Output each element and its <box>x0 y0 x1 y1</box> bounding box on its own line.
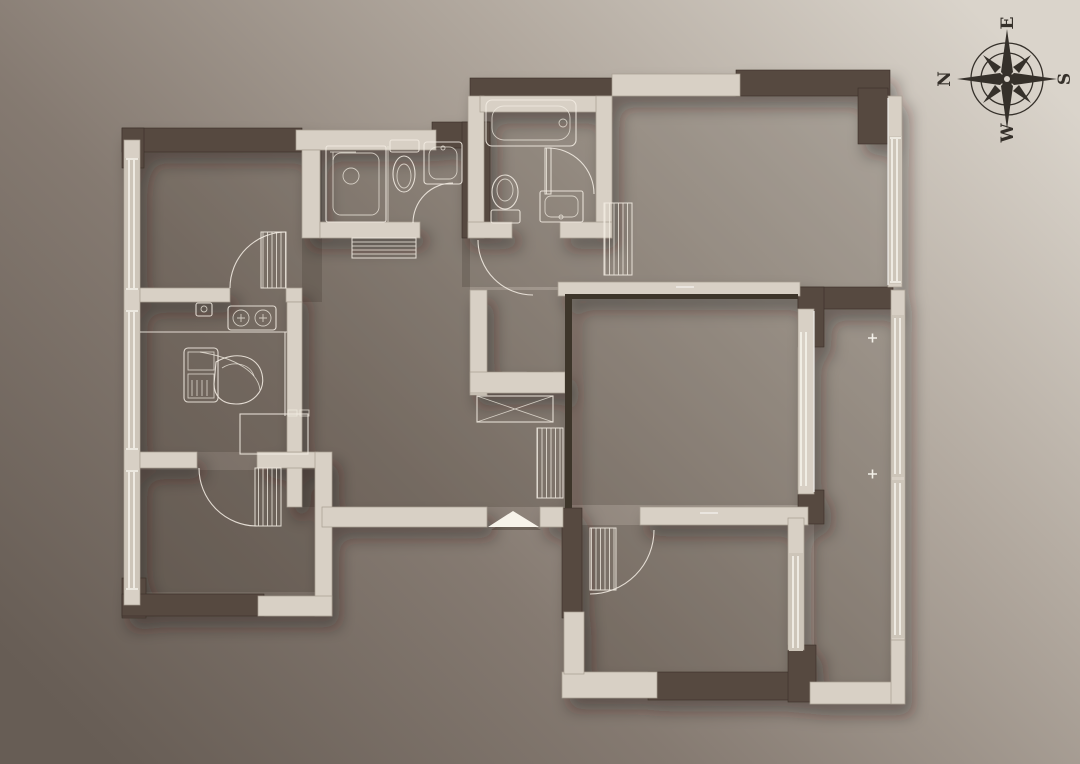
wall-light <box>564 612 584 674</box>
compass-label-south: S <box>1055 73 1075 85</box>
wall-light <box>140 288 230 302</box>
floor-kitchen-study <box>140 302 287 452</box>
door-leaf-top-left-bedroom <box>261 232 286 288</box>
wall-edge <box>565 294 798 299</box>
wall-light <box>286 288 302 302</box>
floor-living-room <box>612 96 888 287</box>
wall-light <box>891 640 905 704</box>
window-kitchen <box>125 310 139 450</box>
compass-label-east: E <box>998 16 1018 29</box>
wall-light <box>470 372 565 393</box>
compass-label-west: W <box>998 123 1018 144</box>
wall-light <box>322 507 487 527</box>
wall-dark <box>562 508 582 618</box>
window-bottom-left-bedroom <box>125 470 139 590</box>
wall-light <box>140 452 197 468</box>
wall-light <box>540 507 563 527</box>
wall-light <box>480 96 612 112</box>
wall-light <box>558 282 800 296</box>
floor-plan-canvas: N E S W <box>0 0 1080 764</box>
wall-dark <box>122 128 302 152</box>
door-leaf-bottom-left-bedroom <box>255 468 281 526</box>
window-living-room <box>889 136 902 284</box>
wall-light <box>640 507 808 525</box>
floor-bedroom-middle <box>572 299 798 505</box>
wall-light <box>315 452 332 616</box>
floor-plan-render: N E S W <box>0 0 1080 764</box>
wall-edge <box>565 294 572 508</box>
floor-alcove <box>487 290 565 372</box>
wall-light <box>258 596 332 616</box>
window-balcony-upper <box>892 315 904 477</box>
wall-light <box>810 682 903 704</box>
door-leaf-bottom-right-bedroom <box>590 528 616 590</box>
wall-dark <box>858 88 888 144</box>
rug-living-room <box>604 203 632 275</box>
wall-dark <box>122 594 264 616</box>
wall-dark <box>648 672 812 700</box>
wall-light <box>320 222 420 238</box>
wall-light <box>612 74 740 96</box>
wall-dark <box>470 78 612 96</box>
floor-balcony <box>814 309 893 682</box>
compass-hub-center <box>1004 76 1010 82</box>
window-bottom-right-bedroom <box>789 553 803 651</box>
rug-entry <box>537 428 563 498</box>
wall-light <box>468 222 512 238</box>
wall-light <box>562 672 657 698</box>
compass-label-north: N <box>935 71 955 87</box>
doormat-symbol <box>352 238 416 258</box>
window-balcony-lower <box>892 480 904 638</box>
window-top-left-bedroom <box>125 158 139 290</box>
wall-light <box>287 302 302 507</box>
floor-corridor <box>462 238 612 287</box>
wall-light <box>468 96 484 238</box>
wall-light <box>302 150 320 238</box>
door-leaf-bathroom-2 <box>545 148 551 194</box>
